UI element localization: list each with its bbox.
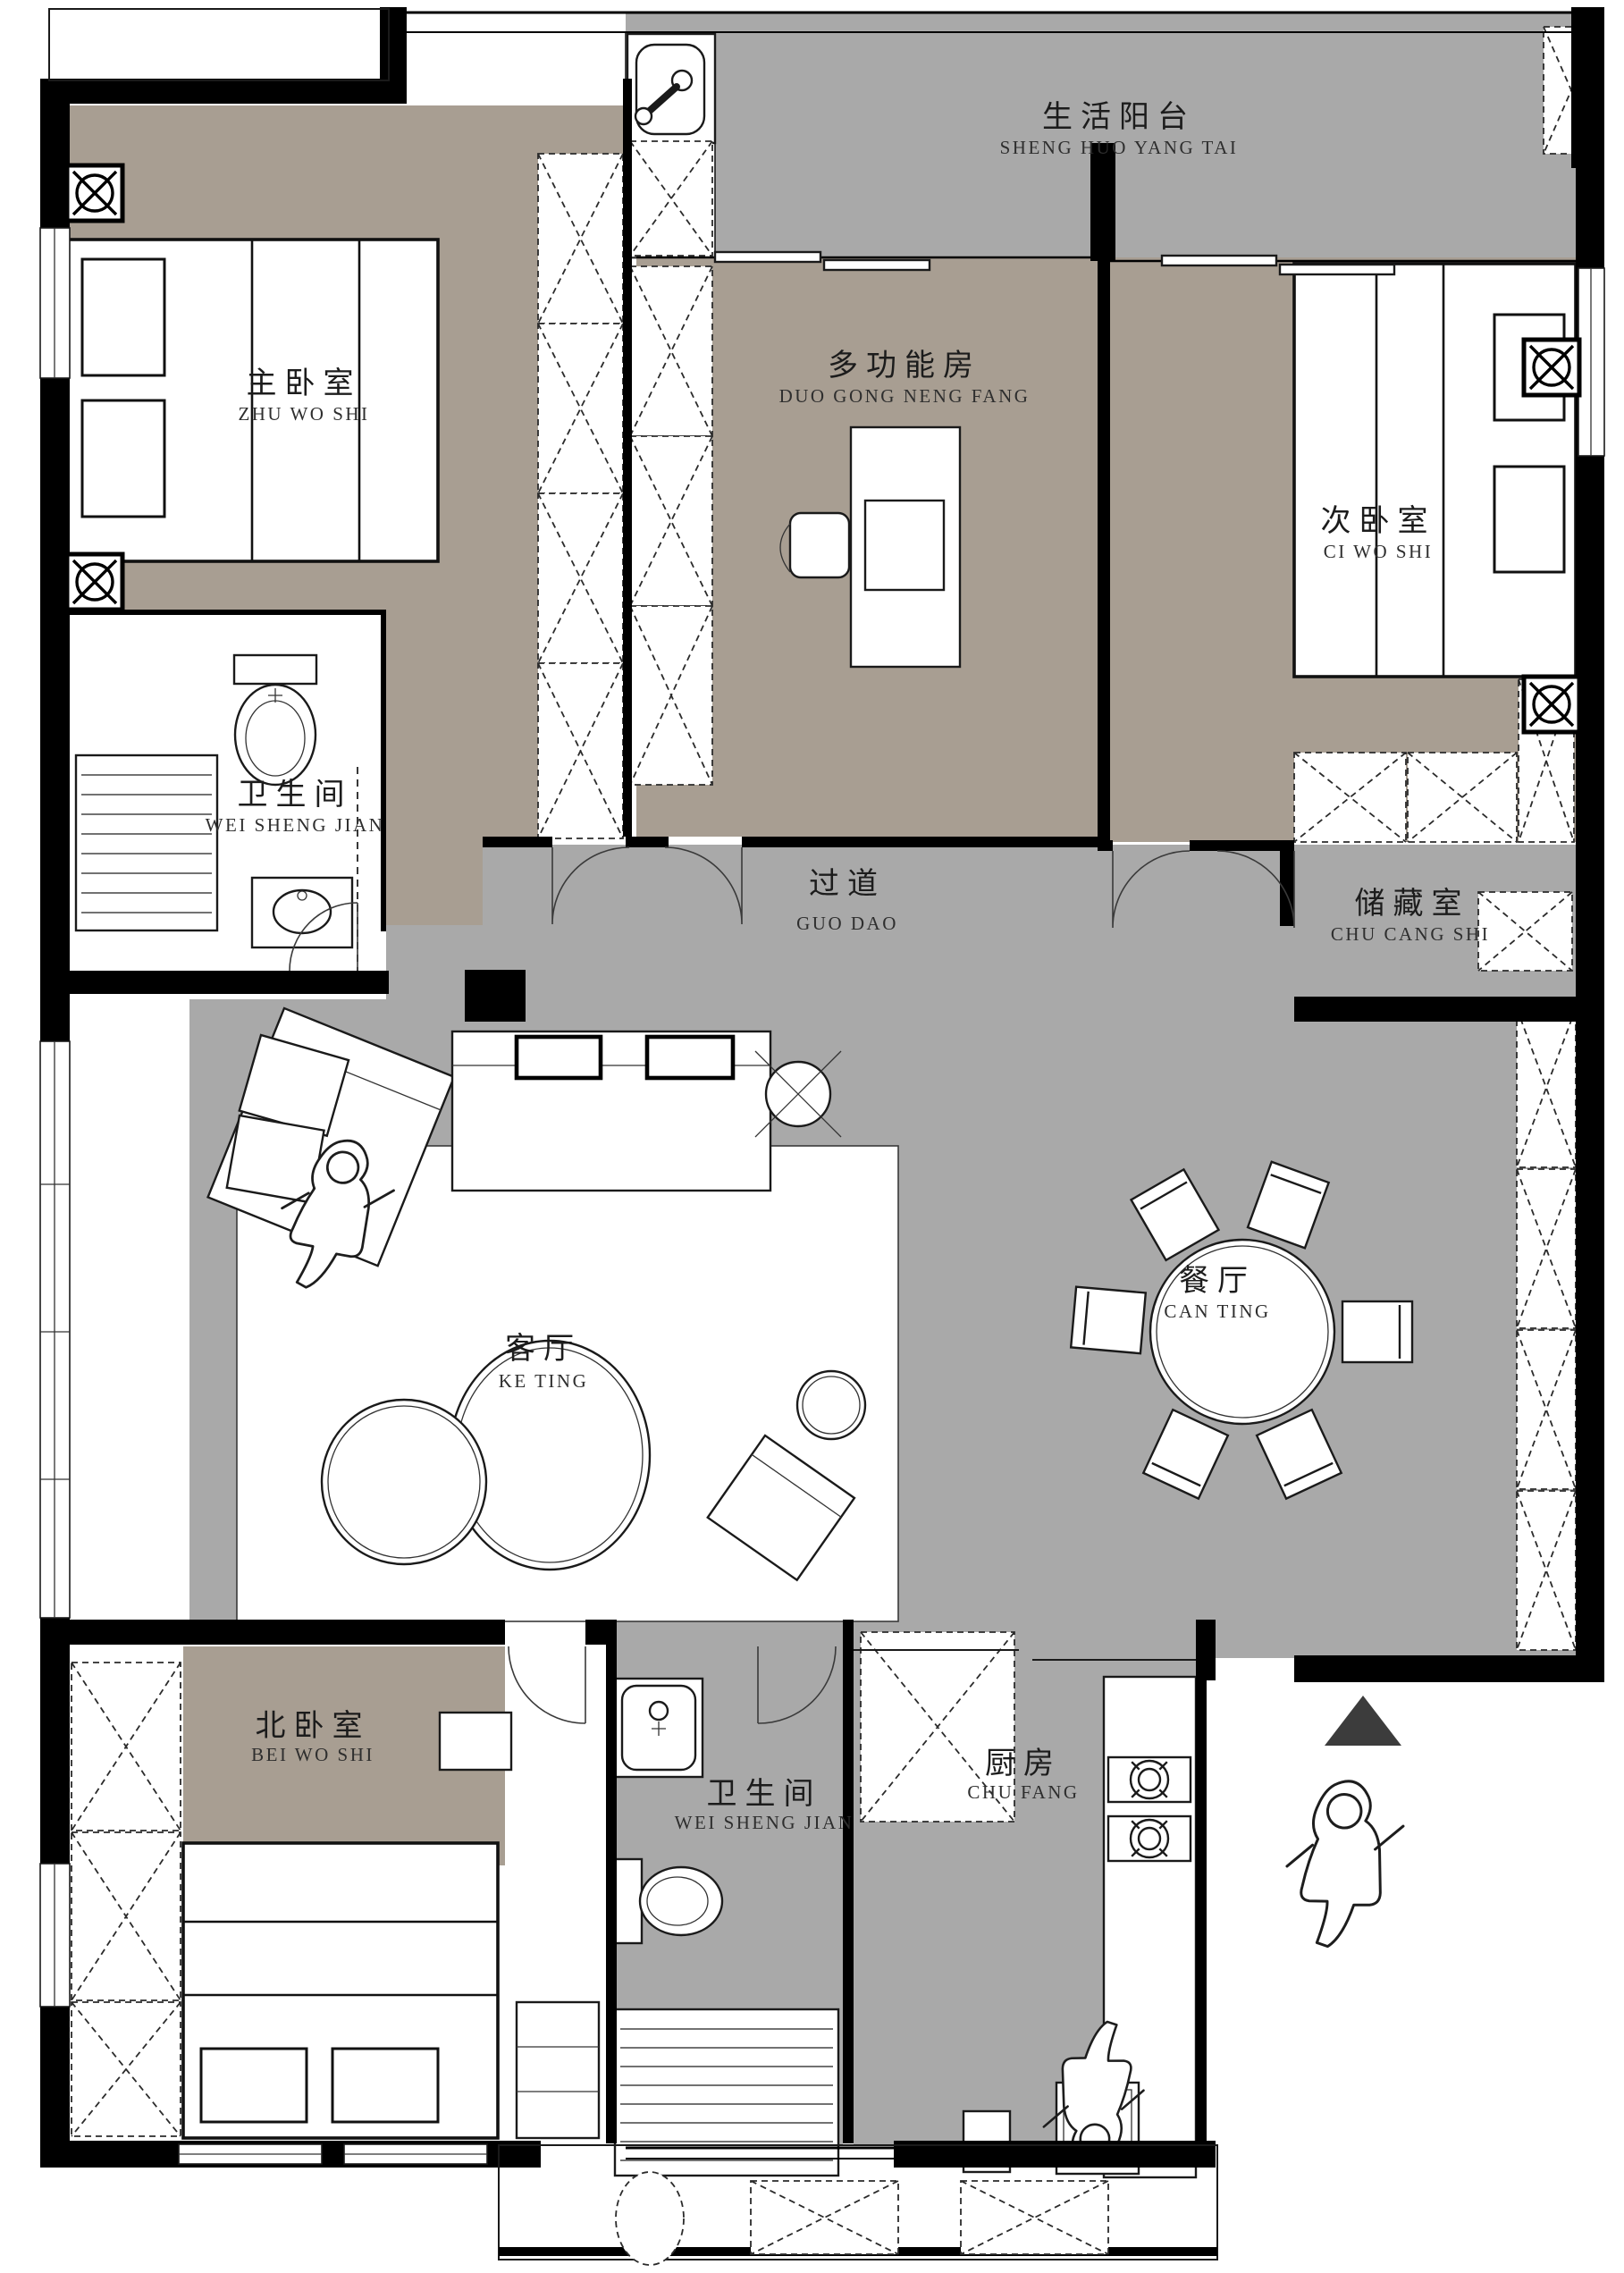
person-figure-outside — [1276, 1774, 1408, 1955]
label-secondary-bedroom-py: CI WO SHI — [1324, 541, 1433, 562]
label-secondary-bedroom-zh: 次卧室 — [1321, 503, 1436, 539]
ceiling-lamp-icon — [1524, 677, 1579, 732]
sliding-door-panel — [715, 252, 820, 262]
label-north-bedroom-zh: 北卧室 — [256, 1708, 371, 1744]
toilet-tank — [234, 655, 316, 684]
label-master-bedroom-zh: 主卧室 — [247, 366, 362, 401]
label-north-bedroom-py: BEI WO SHI — [251, 1744, 374, 1765]
label-hallway-py: GUO DAO — [796, 913, 898, 934]
balcony-cabinet — [630, 141, 712, 256]
label-living-balcony-zh: 生活阳台 — [1042, 99, 1196, 135]
desk-chair — [790, 513, 849, 577]
label-hallway-zh: 过道 — [809, 866, 886, 902]
label-kitchen-py: CHU FANG — [967, 1781, 1079, 1803]
dresser — [517, 2002, 599, 2138]
label-living-balcony-py: SHENG HUO YANG TAI — [1000, 137, 1239, 158]
sliding-door-panel — [1162, 256, 1276, 265]
ceiling-lamp-icon — [1524, 340, 1579, 395]
ceiling-lamp-icon — [67, 165, 122, 221]
coffee-table-small — [322, 1400, 486, 1564]
ceiling-lamp-icon — [67, 554, 122, 610]
sliding-door-panel — [1280, 265, 1394, 274]
floor-plan-drawing: 生活阳台 SHENG HUO YANG TAI 主卧室 ZHU WO SHI 多… — [0, 0, 1624, 2273]
label-multi-function-py: DUO GONG NENG FANG — [779, 385, 1031, 407]
terrace-outline — [49, 9, 389, 80]
label-storage-py: CHU CANG SHI — [1331, 923, 1490, 945]
storage-shelf — [1478, 892, 1572, 971]
secondary-bedroom-furniture — [1294, 264, 1576, 677]
label-bathroom-upper-zh: 卫生间 — [238, 777, 353, 812]
label-kitchen-zh: 厨房 — [985, 1746, 1062, 1781]
living-balcony-fixtures — [626, 32, 715, 257]
nightstand — [440, 1713, 511, 1770]
sliding-door-panel — [824, 260, 930, 270]
shower-tray — [76, 755, 217, 930]
outside-annotations — [1276, 1696, 1408, 1955]
shower-tray — [615, 2009, 838, 2176]
planter — [616, 2172, 684, 2265]
label-master-bedroom-py: ZHU WO SHI — [238, 403, 369, 425]
throw-pillow — [227, 1115, 324, 1202]
north-arrow-icon — [1325, 1696, 1401, 1746]
floor-plan-canvas: 生活阳台 SHENG HUO YANG TAI 主卧室 ZHU WO SHI 多… — [0, 0, 1624, 2273]
label-dining-room-py: CAN TING — [1164, 1301, 1270, 1322]
monitor — [865, 501, 944, 590]
label-living-room-zh: 客厅 — [505, 1331, 582, 1367]
label-dining-room-zh: 餐厅 — [1179, 1263, 1256, 1299]
label-bathroom-upper-py: WEI SHENG JIAN — [206, 814, 385, 836]
label-bathroom-lower-zh: 卫生间 — [707, 1776, 822, 1812]
label-multi-function-zh: 多功能房 — [828, 348, 981, 383]
label-living-room-py: KE TING — [499, 1370, 589, 1392]
living-room-furniture — [208, 1008, 898, 1621]
label-storage-zh: 储藏室 — [1355, 886, 1470, 922]
label-bathroom-lower-py: WEI SHENG JIAN — [675, 1812, 854, 1833]
toilet-tank — [615, 1859, 642, 1943]
side-table — [797, 1371, 865, 1439]
